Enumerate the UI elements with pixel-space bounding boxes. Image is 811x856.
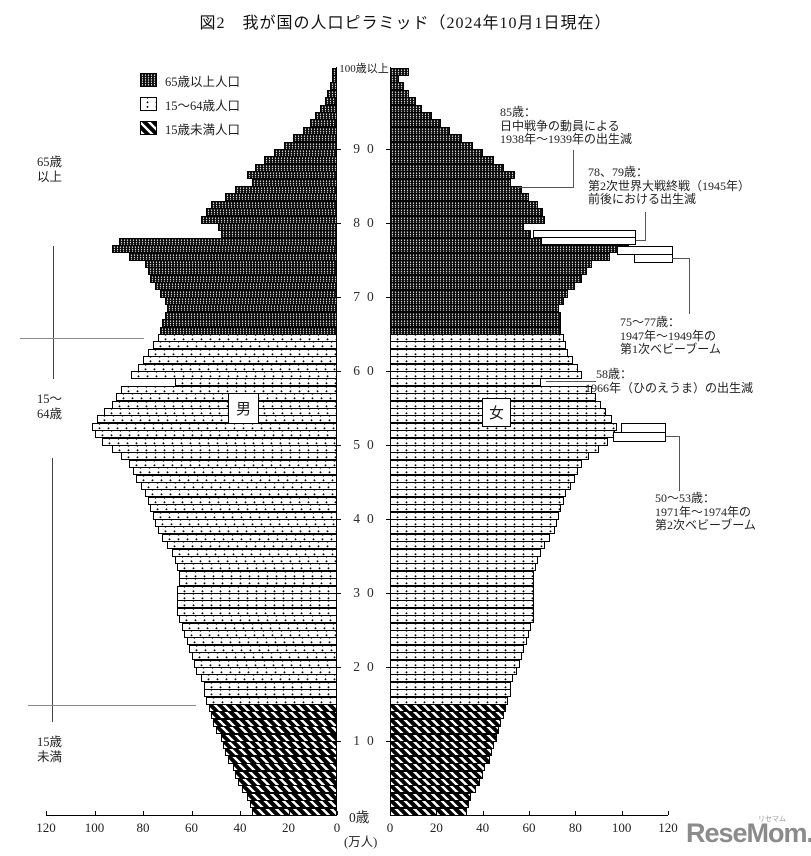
male-bar-age-6 — [233, 763, 337, 771]
x-tick-right-100 — [622, 811, 623, 815]
legend-label: 15～64歳人口 — [165, 95, 240, 114]
male-bar-age-33 — [177, 563, 337, 571]
female-bar-age-3 — [390, 785, 476, 793]
female-bar-age-64 — [390, 334, 564, 342]
female-bar-age-26 — [390, 615, 534, 623]
x-tick-label-right-100: 100 — [612, 820, 632, 836]
female-bar-age-46 — [390, 467, 578, 475]
female-bar-age-30 — [390, 586, 534, 594]
leader-7577-h — [672, 258, 690, 259]
x-tick-label-right-60: 60 — [523, 820, 536, 836]
male-bar-age-83 — [225, 193, 337, 201]
female-bar-age-20 — [390, 660, 520, 668]
leader-85-v — [573, 150, 574, 188]
female-bar-age-1 — [390, 800, 469, 808]
male-bar-age-74 — [145, 260, 337, 268]
female-bar-age-68 — [390, 304, 559, 312]
female-bar-age-36 — [390, 541, 545, 549]
male-bar-age-89 — [274, 149, 337, 157]
age-label-40: 40 — [336, 511, 391, 527]
male-bar-age-88 — [264, 156, 337, 164]
male-bar-age-3 — [242, 785, 337, 793]
legend-item-child: 15歳未満人口 — [140, 116, 240, 140]
female-bar-age-75 — [390, 253, 610, 261]
male-bar-age-47 — [129, 460, 338, 468]
x-tick-label-right-40: 40 — [476, 820, 489, 836]
male-bar-age-63 — [153, 341, 337, 349]
age-100-label: 100歳以上 — [330, 60, 398, 76]
female-bar-age-35 — [390, 549, 541, 557]
female-bar-age-95 — [390, 105, 422, 113]
male-bar-age-20 — [194, 660, 337, 668]
female-bar-age-23 — [390, 637, 527, 645]
male-bar-age-17 — [204, 682, 337, 690]
legend-item-working: 15～64歳人口 — [140, 92, 240, 116]
male-bar-age-100 — [332, 68, 337, 76]
male-bar-age-75 — [129, 253, 338, 261]
female-bar-age-19 — [390, 667, 517, 675]
female-bar-age-43 — [390, 489, 566, 497]
female-bar-age-90 — [390, 142, 473, 150]
age-label-80: 80 — [336, 215, 391, 231]
x-tick-label-left-0: 0 — [334, 820, 341, 836]
working-pattern-swatch — [140, 97, 157, 111]
female-bar-age-87 — [390, 164, 504, 172]
male-bar-age-85 — [252, 179, 337, 187]
female-bar-age-88 — [390, 156, 494, 164]
bracket-5053-lower — [613, 432, 666, 442]
male-bar-age-14 — [209, 704, 338, 712]
annotation-78-79: 78、79歳： 第2次世界大戦終戦（1945年） 前後における出生減 — [588, 166, 750, 207]
population-pyramid-figure: 図2 我が国の人口ピラミッド（2024年10月1日現在） 65歳以上人口 15～… — [0, 0, 811, 856]
age-0-label: 0歳 — [349, 806, 369, 826]
female-bar-age-83 — [390, 193, 529, 201]
female-bar-age-13 — [390, 711, 504, 719]
x-tick-label-left-120: 120 — [36, 820, 56, 836]
male-bar-age-91 — [293, 134, 337, 142]
x-tick-left-40 — [240, 811, 241, 815]
male-bar-age-16 — [204, 689, 337, 697]
male-bar-age-37 — [162, 534, 337, 542]
female-bar-age-14 — [390, 704, 506, 712]
female-bar-age-2 — [390, 793, 471, 801]
legend-label: 15歳未満人口 — [165, 119, 240, 138]
male-bar-age-7 — [228, 756, 337, 764]
female-bar-age-99 — [390, 75, 399, 83]
female-bar-age-28 — [390, 600, 534, 608]
x-tick-left-0 — [337, 811, 338, 815]
male-bar-age-72 — [150, 275, 337, 283]
x-tick-left-20 — [289, 811, 290, 815]
male-bar-age-86 — [247, 171, 337, 179]
female-bar-age-80 — [390, 216, 545, 224]
female-bar-age-39 — [390, 519, 557, 527]
female-bar-age-78 — [390, 230, 531, 238]
female-bar-age-24 — [390, 630, 529, 638]
x-tick-label-left-60: 60 — [185, 820, 198, 836]
female-bar-age-96 — [390, 97, 416, 105]
male-bar-age-90 — [284, 142, 337, 150]
male-bar-age-79 — [218, 223, 337, 231]
male-bar-age-23 — [187, 637, 337, 645]
female-bar-age-40 — [390, 512, 559, 520]
male-bar-age-87 — [255, 164, 337, 172]
female-bar-age-38 — [390, 526, 555, 534]
leader-5053-v — [679, 436, 680, 491]
male-bar-age-92 — [303, 127, 337, 135]
male-bar-age-98 — [330, 82, 337, 90]
male-bar-age-96 — [325, 97, 337, 105]
male-bar-age-15 — [206, 697, 337, 705]
male-bar-age-21 — [192, 652, 338, 660]
female-bar-age-66 — [390, 319, 561, 327]
male-bar-age-28 — [177, 600, 337, 608]
age-label-90: 90 — [336, 141, 391, 157]
male-bar-age-55 — [112, 401, 338, 409]
female-bar-age-69 — [390, 297, 564, 305]
leader-85-h — [517, 187, 573, 188]
male-bar-age-4 — [238, 778, 337, 786]
female-bar-age-86 — [390, 171, 515, 179]
female-bar-age-97 — [390, 90, 409, 98]
female-bar-age-8 — [390, 748, 492, 756]
female-bar-age-93 — [390, 119, 441, 127]
male-bar-age-68 — [167, 304, 337, 312]
male-bar-age-60 — [138, 364, 337, 372]
legend-label: 65歳以上人口 — [165, 71, 240, 90]
male-bar-age-10 — [221, 734, 337, 742]
female-bar-age-41 — [390, 504, 561, 512]
male-bar-age-18 — [201, 674, 337, 682]
male-bar-age-82 — [211, 201, 337, 209]
x-tick-label-left-80: 80 — [137, 820, 150, 836]
male-bar-age-76 — [112, 245, 338, 253]
female-bar-age-37 — [390, 534, 550, 542]
female-bar-age-12 — [390, 719, 501, 727]
female-bar-age-18 — [390, 674, 513, 682]
male-bar-age-40 — [153, 512, 337, 520]
x-tick-left-100 — [95, 811, 96, 815]
female-bar-age-31 — [390, 578, 534, 586]
male-bar-age-43 — [145, 489, 337, 497]
male-bar-age-50 — [102, 438, 337, 446]
female-bar-age-63 — [390, 341, 566, 349]
female-bar-age-10 — [390, 734, 497, 742]
female-bar-age-81 — [390, 208, 543, 216]
male-bar-age-36 — [167, 541, 337, 549]
male-bar-age-51 — [95, 430, 338, 438]
male-bar-age-97 — [327, 90, 337, 98]
male-bar-age-1 — [250, 800, 337, 808]
male-bar-age-73 — [148, 267, 337, 275]
x-tick-label-right-80: 80 — [569, 820, 582, 836]
x-tick-label-right-120: 120 — [658, 820, 678, 836]
bracket-7577-lower — [634, 254, 673, 263]
female-bar-age-73 — [390, 267, 587, 275]
x-tick-right-0 — [390, 811, 391, 815]
female-bar-age-44 — [390, 482, 571, 490]
male-bar-age-53 — [97, 415, 337, 423]
male-bar-age-0 — [252, 808, 337, 816]
annotation-58: 58歳： 1966年（ひのえうま）の出生減 — [585, 368, 753, 395]
legend: 65歳以上人口 15～64歳人口 15歳未満人口 — [140, 68, 240, 140]
female-bar-age-67 — [390, 312, 561, 320]
male-bar-age-19 — [196, 667, 337, 675]
male-bar-age-2 — [247, 793, 337, 801]
age-label-50: 50 — [336, 437, 391, 453]
female-bar-age-94 — [390, 112, 432, 120]
x-tick-label-right-20: 20 — [430, 820, 443, 836]
male-bar-age-94 — [315, 112, 337, 120]
female-bar-age-70 — [390, 290, 568, 298]
unit-label: (万人) — [344, 831, 377, 850]
female-label-box: 女 — [482, 398, 511, 427]
x-tick-label-left-40: 40 — [234, 820, 247, 836]
side-label-15-64: 15～64歳 — [36, 392, 63, 421]
x-tick-right-60 — [529, 811, 530, 815]
female-bar-age-72 — [390, 275, 582, 283]
female-bar-age-29 — [390, 593, 534, 601]
leader-7577-v — [689, 258, 690, 314]
male-bar-age-48 — [121, 452, 337, 460]
female-bar-age-84 — [390, 186, 522, 194]
male-bar-age-38 — [158, 526, 337, 534]
male-bar-age-5 — [235, 771, 337, 779]
female-bar-age-74 — [390, 260, 592, 268]
resemom-logo: ReseMom. — [686, 818, 811, 849]
female-bar-age-50 — [390, 438, 608, 446]
male-bar-age-56 — [116, 393, 337, 401]
female-bar-age-98 — [390, 82, 404, 90]
x-tick-right-80 — [575, 811, 576, 815]
male-bar-age-52 — [92, 423, 337, 431]
male-bar-age-65 — [160, 327, 337, 335]
female-bar-age-59 — [390, 371, 582, 379]
female-bar-age-60 — [390, 364, 578, 372]
male-bar-age-45 — [136, 475, 337, 483]
female-bar-age-65 — [390, 327, 561, 335]
male-bar-age-66 — [162, 319, 337, 327]
male-bar-age-77 — [119, 238, 337, 246]
male-bar-age-49 — [112, 445, 338, 453]
female-label: 女 — [489, 402, 504, 423]
female-bar-age-33 — [390, 563, 536, 571]
male-bar-age-29 — [177, 593, 337, 601]
female-bar-age-11 — [390, 726, 499, 734]
male-bar-age-42 — [148, 497, 337, 505]
age-label-60: 60 — [336, 363, 391, 379]
female-bar-age-45 — [390, 475, 575, 483]
x-tick-left-60 — [192, 811, 193, 815]
male-bar-age-30 — [177, 586, 337, 594]
age-label-20: 20 — [336, 659, 391, 675]
female-bar-age-92 — [390, 127, 450, 135]
side-label-under-15: 15歳未満 — [36, 735, 63, 764]
annotation-50-53: 50～53歳： 1971年～1974年の 第2次ベビーブーム — [655, 492, 756, 533]
female-bar-age-15 — [390, 697, 508, 705]
male-bar-age-81 — [206, 208, 337, 216]
male-bar-age-95 — [320, 105, 337, 113]
male-label: 男 — [236, 398, 251, 419]
male-bar-age-61 — [143, 356, 337, 364]
age-label-10: 10 — [336, 733, 391, 749]
female-bar-age-0 — [390, 808, 467, 816]
bracket-line-working — [52, 458, 53, 722]
male-bar-age-32 — [179, 571, 337, 579]
female-bar-age-42 — [390, 497, 564, 505]
female-bar-age-62 — [390, 349, 568, 357]
annotation-85: 85歳： 日中戦争の動員による 1938年～1939年の出生減 — [500, 106, 632, 147]
x-tick-left-80 — [143, 811, 144, 815]
female-bar-age-25 — [390, 623, 531, 631]
female-bar-age-61 — [390, 356, 573, 364]
x-tick-right-120 — [668, 811, 669, 815]
x-tick-label-left-20: 20 — [282, 820, 295, 836]
female-bar-age-16 — [390, 689, 511, 697]
female-bar-age-48 — [390, 452, 589, 460]
female-bar-age-32 — [390, 571, 534, 579]
female-bar-age-49 — [390, 445, 599, 453]
female-bar-age-7 — [390, 756, 490, 764]
female-bar-age-21 — [390, 652, 522, 660]
elderly-pattern-swatch — [140, 73, 157, 87]
male-bar-age-59 — [131, 371, 337, 379]
age15-boundary-line — [28, 705, 196, 706]
female-bar-age-5 — [390, 771, 483, 779]
leader-5053-h — [666, 436, 679, 437]
female-bar-age-27 — [390, 608, 534, 616]
female-bar-age-34 — [390, 556, 538, 564]
male-bar-age-80 — [201, 216, 337, 224]
leader-7879-v — [645, 212, 646, 241]
x-tick-right-40 — [483, 811, 484, 815]
female-bar-age-82 — [390, 201, 538, 209]
male-label-box: 男 — [228, 393, 259, 424]
leader-7879-h — [636, 240, 646, 241]
male-bar-age-64 — [158, 334, 337, 342]
figure-title: 図2 我が国の人口ピラミッド（2024年10月1日現在） — [0, 9, 811, 33]
female-bar-age-22 — [390, 645, 524, 653]
male-bar-age-9 — [223, 741, 337, 749]
age-label-30: 30 — [336, 585, 391, 601]
male-bar-age-70 — [160, 290, 337, 298]
female-bar-age-85 — [390, 179, 511, 187]
female-bar-age-76 — [390, 245, 629, 253]
male-bar-age-12 — [213, 719, 337, 727]
male-bar-age-67 — [165, 312, 337, 320]
bracket-7879-lower — [541, 237, 636, 245]
female-bar-age-58 — [390, 378, 541, 386]
male-bar-age-27 — [177, 608, 337, 616]
male-bar-age-93 — [310, 119, 337, 127]
female-bar-age-71 — [390, 282, 575, 290]
male-bar-age-46 — [133, 467, 337, 475]
female-bar-age-79 — [390, 223, 524, 231]
male-bar-age-71 — [155, 282, 337, 290]
male-bar-age-34 — [175, 556, 338, 564]
legend-item-elderly: 65歳以上人口 — [140, 68, 240, 92]
resemom-logo-ruby: リセマム — [758, 814, 786, 824]
male-bar-age-22 — [189, 645, 337, 653]
annotation-75-77: 75～77歳： 1947年～1949年の 第1次ベビーブーム — [620, 316, 721, 357]
male-bar-age-13 — [211, 711, 337, 719]
female-bar-age-9 — [390, 741, 494, 749]
female-bar-age-51 — [390, 430, 615, 438]
male-bar-age-26 — [179, 615, 337, 623]
x-tick-label-left-100: 100 — [85, 820, 105, 836]
age-label-70: 70 — [336, 289, 391, 305]
male-bar-age-31 — [179, 578, 337, 586]
male-bar-age-24 — [184, 630, 337, 638]
x-tick-right-20 — [436, 811, 437, 815]
male-bar-age-11 — [216, 726, 337, 734]
female-bar-age-100 — [390, 68, 409, 76]
female-bar-age-6 — [390, 763, 485, 771]
male-bar-age-78 — [221, 230, 337, 238]
male-bar-age-69 — [165, 297, 337, 305]
child-pattern-swatch — [140, 121, 157, 135]
female-bar-age-91 — [390, 134, 462, 142]
female-bar-age-47 — [390, 460, 582, 468]
male-bar-age-8 — [225, 748, 337, 756]
bracket-line-elderly — [53, 246, 54, 379]
x-tick-left-120 — [46, 811, 47, 815]
age65-boundary-line — [20, 338, 144, 339]
male-bar-age-58 — [175, 378, 338, 386]
male-bar-age-54 — [104, 408, 337, 416]
male-bar-age-35 — [172, 549, 337, 557]
male-bar-age-25 — [182, 623, 337, 631]
female-bar-age-17 — [390, 682, 511, 690]
male-bar-age-99 — [332, 75, 337, 83]
male-bar-age-44 — [141, 482, 337, 490]
female-bar-age-4 — [390, 778, 480, 786]
x-tick-label-right-0: 0 — [387, 820, 394, 836]
male-bar-age-39 — [155, 519, 337, 527]
male-bar-age-84 — [235, 186, 337, 194]
female-bar-age-57 — [390, 386, 592, 394]
side-label-65-plus: 65歳以上 — [36, 155, 63, 184]
female-bar-age-89 — [390, 149, 483, 157]
male-bar-age-62 — [148, 349, 337, 357]
male-bar-age-41 — [150, 504, 337, 512]
